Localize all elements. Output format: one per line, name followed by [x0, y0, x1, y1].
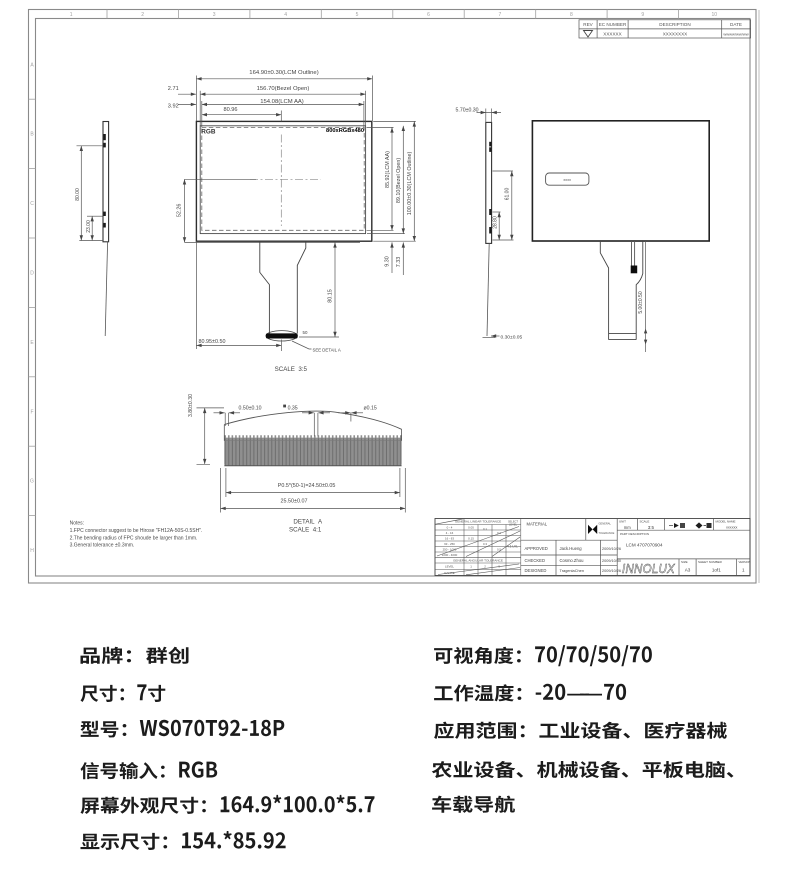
- svg-text:MATERIAL: MATERIAL: [527, 522, 548, 527]
- svg-text:LEVEL: LEVEL: [509, 523, 518, 527]
- svg-text:LCM 4707070904: LCM 4707070904: [626, 543, 663, 548]
- svg-text:0.05: 0.05: [468, 526, 474, 530]
- svg-text:REV: REV: [583, 22, 593, 27]
- svg-text:156.70(Bezel Open): 156.70(Bezel Open): [257, 86, 310, 92]
- svg-text:SIZE: SIZE: [681, 560, 688, 564]
- svg-text:INNOLUX: INNOLUX: [622, 561, 676, 576]
- svg-text:2: 2: [484, 565, 486, 569]
- svg-text:2009/10/26: 2009/10/26: [602, 569, 621, 573]
- svg-text:28.80: 28.80: [492, 216, 498, 229]
- svg-text:1: 1: [742, 567, 745, 572]
- svg-text:EC NUMBER: EC NUMBER: [599, 22, 627, 27]
- svg-text:800xRGBx480: 800xRGBx480: [326, 128, 364, 134]
- svg-text:xxxxxx: xxxxxx: [726, 526, 737, 530]
- svg-text:4 - 16: 4 - 16: [446, 531, 454, 535]
- svg-text:E: E: [30, 340, 34, 346]
- svg-text:85.92(LCM AA): 85.92(LCM AA): [385, 151, 391, 188]
- svg-text:80.00: 80.00: [75, 188, 81, 201]
- svg-text:10: 10: [712, 12, 718, 18]
- svg-text:wwww/ww/ww: wwww/ww/ww: [723, 31, 748, 36]
- svg-text:1: 1: [70, 12, 73, 18]
- svg-text:A: A: [30, 62, 34, 68]
- svg-text:XXXXXXXX: XXXXXXXX: [663, 31, 688, 36]
- svg-text:G: G: [30, 479, 34, 485]
- svg-text:52.26: 52.26: [177, 204, 183, 218]
- svg-text:2009/10/26: 2009/10/26: [602, 547, 621, 551]
- svg-text:SCALE: SCALE: [640, 520, 650, 524]
- svg-text:D: D: [30, 271, 34, 277]
- svg-text:2: 2: [141, 12, 144, 18]
- svg-text:1: 1: [470, 565, 472, 569]
- svg-text:Notes:: Notes:: [70, 521, 84, 527]
- svg-text:80.95±0.50: 80.95±0.50: [199, 339, 226, 345]
- svg-text:63 - 250: 63 - 250: [444, 542, 455, 546]
- svg-text:XXXXXX: XXXXXX: [603, 31, 621, 36]
- svg-text:0.3: 0.3: [483, 542, 487, 546]
- svg-text:0.50±0.10: 0.50±0.10: [239, 405, 262, 411]
- svg-text:DESIGNED: DESIGNED: [525, 568, 547, 573]
- svg-text:0 - 4: 0 - 4: [447, 526, 453, 530]
- svg-text:2009/10/30: 2009/10/30: [602, 559, 621, 563]
- svg-text:B: B: [30, 132, 34, 138]
- svg-text:RGB: RGB: [201, 128, 216, 135]
- svg-text:164.90±0.30(LCM Outline): 164.90±0.30(LCM Outline): [249, 70, 318, 76]
- svg-text:9: 9: [641, 12, 644, 18]
- svg-text:0.15: 0.15: [468, 537, 474, 541]
- svg-text:SHEET NUMBER: SHEET NUMBER: [698, 560, 723, 564]
- svg-text:0.35: 0.35: [288, 405, 298, 411]
- svg-text:SCALE 4:1: SCALE 4:1: [289, 527, 322, 534]
- svg-text:9.30: 9.30: [385, 256, 391, 267]
- svg-text:0.5: 0.5: [497, 548, 501, 552]
- svg-text:Jack.Hueng: Jack.Hueng: [560, 546, 583, 551]
- svg-text:25.50±0.07: 25.50±0.07: [281, 499, 308, 505]
- svg-text:A3: A3: [685, 567, 691, 572]
- svg-text:250 - 1000: 250 - 1000: [443, 548, 457, 552]
- svg-text:mm: mm: [624, 525, 631, 530]
- svg-text:61.00: 61.00: [505, 188, 511, 201]
- svg-text:UNIT: UNIT: [619, 520, 626, 524]
- svg-text:RANGE: RANGE: [444, 571, 454, 575]
- svg-text:0.2: 0.2: [497, 531, 501, 535]
- svg-text:TrageniaChen: TrageniaChen: [560, 568, 585, 573]
- svg-text:3.92: 3.92: [168, 104, 179, 110]
- svg-text:APPROVED: APPROVED: [525, 546, 548, 551]
- svg-text:3: 3: [213, 12, 216, 18]
- svg-text:GENERAL: GENERAL: [599, 522, 612, 526]
- svg-text:3.80±0.30: 3.80±0.30: [188, 394, 194, 417]
- svg-text:LEVEL: LEVEL: [445, 565, 454, 569]
- svg-text:SEE DETAIL A: SEE DETAIL A: [313, 347, 341, 352]
- svg-text:100.00±0.30(LCM Outline): 100.00±0.30(LCM Outline): [407, 152, 413, 216]
- svg-text:3.General tolerance ±0.3mm.: 3.General tolerance ±0.3mm.: [70, 543, 135, 549]
- svg-text:80.15: 80.15: [327, 289, 333, 303]
- svg-text:CHECKED: CHECKED: [525, 558, 545, 563]
- svg-text:154.08(LCM AA): 154.08(LCM AA): [260, 99, 304, 105]
- svg-text:GENERAL LINEAR TOLERANCE: GENERAL LINEAR TOLERANCE: [455, 520, 501, 524]
- svg-text:3:5: 3:5: [648, 525, 655, 530]
- svg-text:16 - 63: 16 - 63: [445, 537, 454, 541]
- svg-text:7.33: 7.33: [396, 257, 402, 268]
- svg-text:89.10(Bezel Open): 89.10(Bezel Open): [396, 158, 402, 203]
- svg-text:0.1: 0.1: [483, 527, 487, 531]
- svg-text:Cosmo.Zhou: Cosmo.Zhou: [560, 558, 585, 563]
- svg-text:DESCRIPTION: DESCRIPTION: [659, 22, 690, 27]
- svg-text:2.71: 2.71: [168, 86, 179, 92]
- svg-text:xxxx: xxxx: [563, 178, 571, 182]
- svg-text:GENERAL ANGULAR TOLERANCE: GENERAL ANGULAR TOLERANCE: [453, 559, 503, 563]
- svg-text:ø0.15: ø0.15: [364, 405, 377, 411]
- svg-text:1.FPC connector suggest to be: 1.FPC connector suggest to be Hirose "FH…: [70, 528, 203, 534]
- svg-text:TOLERANCE: TOLERANCE: [599, 531, 615, 535]
- svg-text:MODEL NAME: MODEL NAME: [716, 520, 736, 524]
- svg-text:1000 - 4000: 1000 - 4000: [442, 553, 458, 557]
- svg-text:5: 5: [356, 12, 359, 18]
- svg-text:2.The bending radius of FPC sh: 2.The bending radius of FPC shoude be la…: [70, 535, 198, 541]
- svg-text:PART DESCRIPTION: PART DESCRIPTION: [620, 532, 649, 536]
- svg-text:4.1 LVL: 4.1 LVL: [507, 545, 518, 549]
- svg-text:C: C: [30, 201, 34, 207]
- svg-text:5.00±0.50: 5.00±0.50: [638, 291, 644, 313]
- svg-text:H: H: [30, 548, 34, 554]
- svg-text:80.96: 80.96: [224, 107, 238, 113]
- svg-text:P0.5*(50-1)=24.50±0.05: P0.5*(50-1)=24.50±0.05: [278, 483, 336, 489]
- svg-text:8: 8: [570, 12, 573, 18]
- svg-text:VERSION: VERSION: [739, 560, 751, 564]
- svg-text:5.70±0.30: 5.70±0.30: [456, 107, 479, 113]
- svg-text:F: F: [30, 409, 33, 415]
- svg-text:DATE: DATE: [730, 22, 742, 27]
- svg-text:7: 7: [499, 12, 502, 18]
- svg-text:4: 4: [284, 12, 287, 18]
- svg-text:SCALE 3:5: SCALE 3:5: [275, 366, 308, 373]
- svg-text:6: 6: [427, 12, 430, 18]
- svg-text:DETAIL A: DETAIL A: [293, 518, 323, 525]
- svg-text:1of1: 1of1: [712, 567, 721, 572]
- svg-text:23.00: 23.00: [86, 220, 92, 233]
- svg-text:0.30±0.05: 0.30±0.05: [501, 334, 523, 340]
- svg-text:50: 50: [303, 330, 308, 335]
